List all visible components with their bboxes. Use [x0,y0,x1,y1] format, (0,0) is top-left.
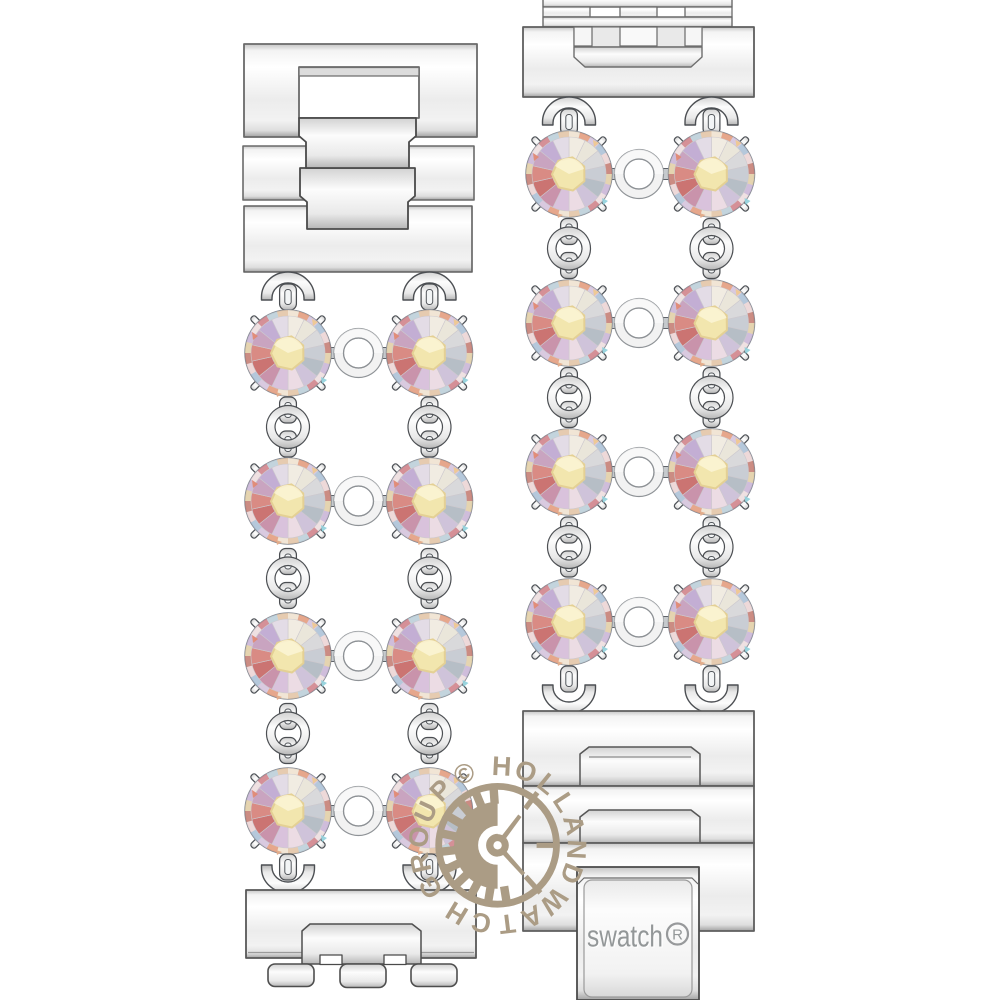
svg-text:swatch: swatch [587,919,663,954]
svg-text:T: T [497,908,518,940]
svg-text:H: H [491,751,512,782]
svg-text:R: R [672,927,683,944]
svg-text:O: O [403,825,435,849]
svg-text:N: N [561,839,592,860]
